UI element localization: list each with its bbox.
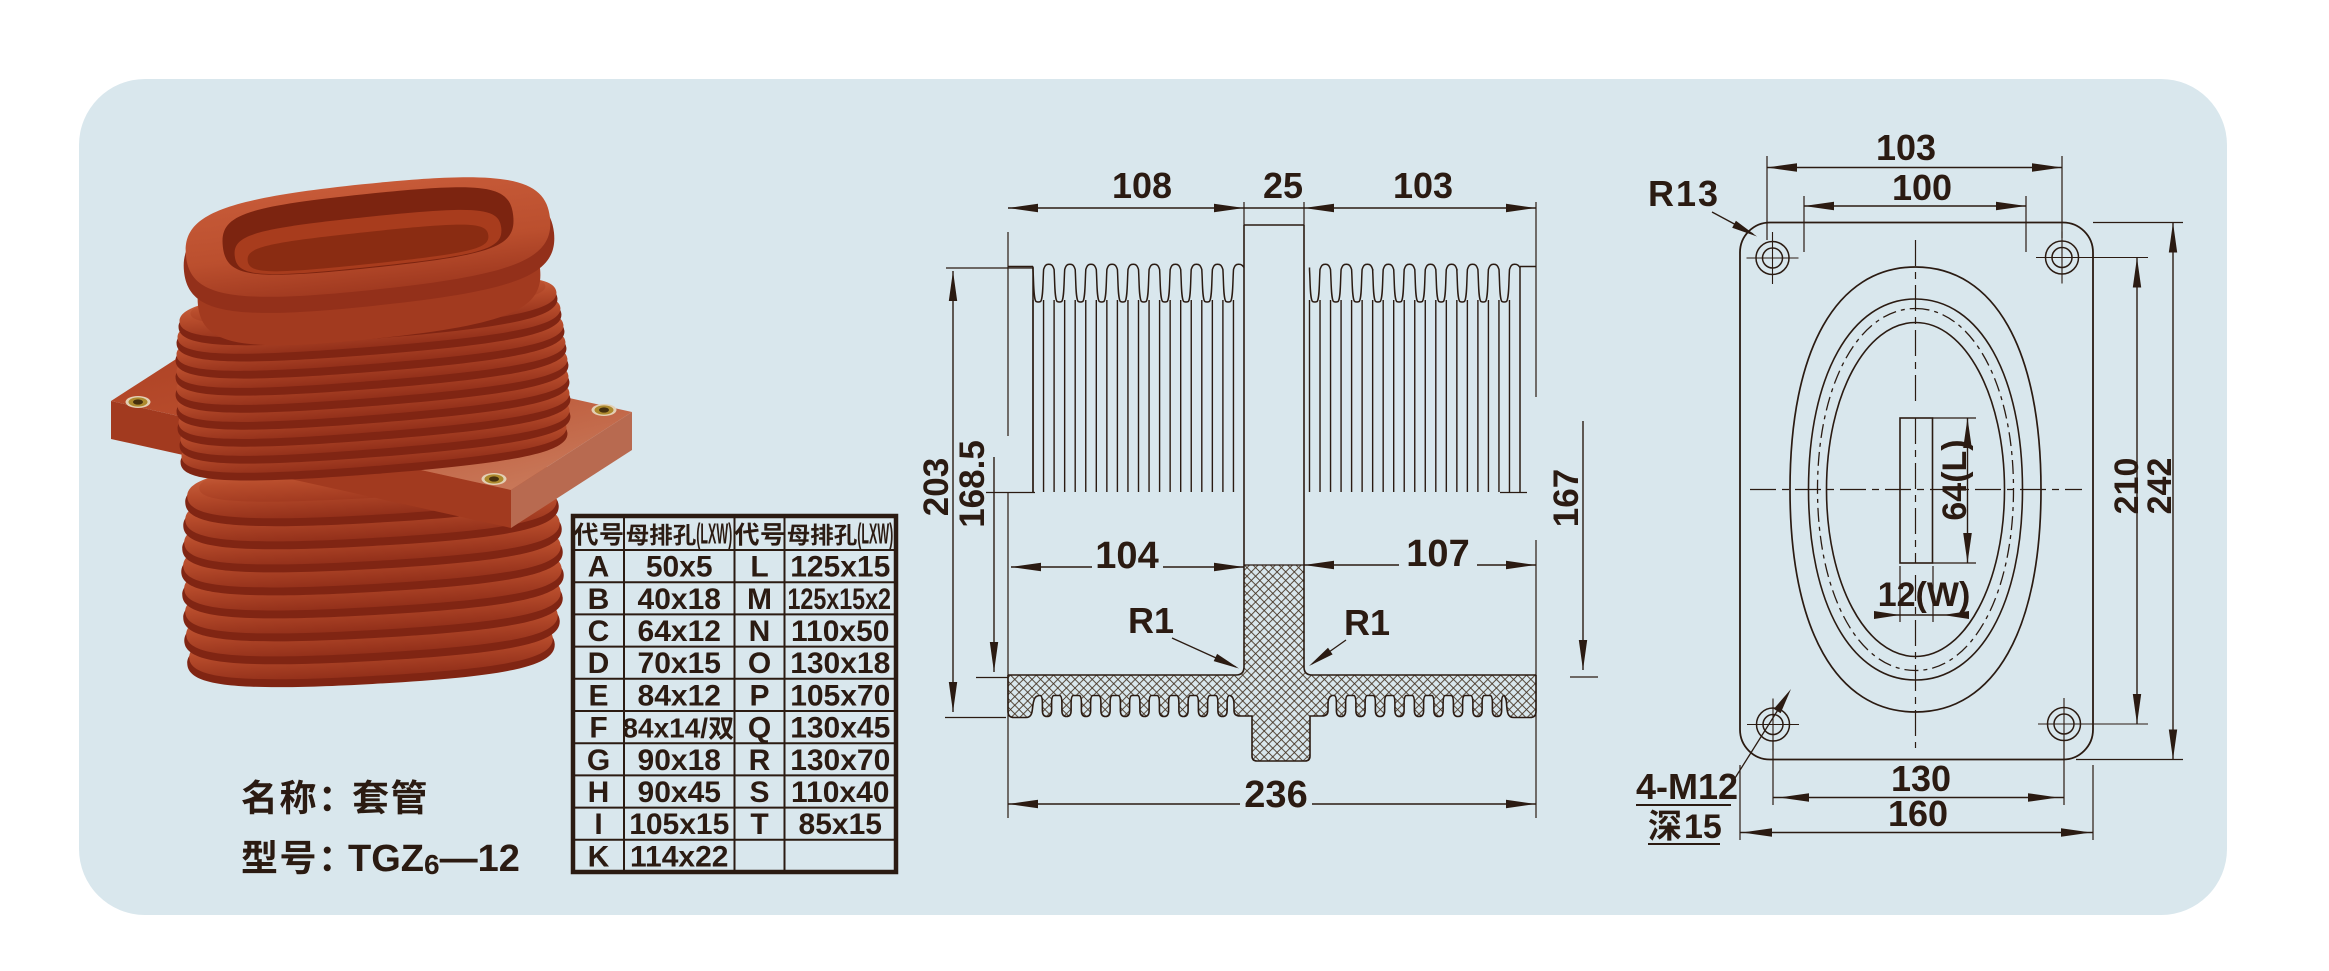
- svg-text:84x14/: 84x14/: [622, 713, 708, 744]
- svg-text:R: R: [749, 744, 771, 777]
- svg-text:15: 15: [1684, 808, 1722, 846]
- svg-text:C: C: [588, 615, 610, 648]
- svg-text:N: N: [749, 615, 771, 648]
- svg-text:R1: R1: [1344, 602, 1390, 643]
- svg-text:H: H: [588, 776, 610, 809]
- svg-text:84x12: 84x12: [638, 679, 721, 712]
- svg-text:E: E: [588, 679, 608, 712]
- svg-text:130x70: 130x70: [790, 744, 890, 777]
- svg-text:(LXW): (LXW): [696, 519, 732, 551]
- svg-text:110x50: 110x50: [791, 615, 889, 648]
- svg-text:I: I: [594, 808, 602, 841]
- svg-text:103: 103: [1876, 127, 1936, 168]
- svg-text:105x15: 105x15: [629, 808, 729, 841]
- svg-text:108: 108: [1112, 165, 1172, 206]
- svg-text:F: F: [589, 712, 607, 745]
- svg-text:M: M: [747, 583, 772, 616]
- svg-text:64x12: 64x12: [638, 615, 721, 648]
- svg-text:103: 103: [1393, 165, 1453, 206]
- svg-text:90x18: 90x18: [638, 744, 721, 777]
- svg-text:L: L: [750, 551, 768, 584]
- svg-text:105x70: 105x70: [790, 679, 890, 712]
- svg-text:40x18: 40x18: [638, 583, 721, 616]
- svg-text:242: 242: [2141, 458, 2179, 515]
- svg-text:A: A: [588, 551, 610, 584]
- svg-text:125x15: 125x15: [790, 551, 890, 584]
- svg-text:G: G: [587, 744, 610, 777]
- svg-text:90x45: 90x45: [638, 776, 721, 809]
- svg-text:K: K: [588, 840, 610, 873]
- svg-text:100: 100: [1892, 167, 1952, 208]
- svg-text:167: 167: [1547, 469, 1586, 527]
- svg-text:4-M12: 4-M12: [1636, 766, 1738, 807]
- svg-text:64(L): 64(L): [1936, 439, 1974, 520]
- svg-text:107: 107: [1406, 533, 1469, 575]
- svg-text:R13: R13: [1648, 173, 1720, 214]
- svg-text:125x15x2: 125x15x2: [788, 583, 892, 616]
- svg-text:B: B: [588, 583, 610, 616]
- svg-text:210: 210: [2108, 458, 2146, 515]
- svg-text:130x45: 130x45: [790, 712, 890, 745]
- svg-text:S: S: [749, 776, 769, 809]
- svg-text:P: P: [749, 679, 769, 712]
- svg-text:168.5: 168.5: [953, 440, 992, 528]
- svg-text:130x18: 130x18: [790, 647, 890, 680]
- svg-text:D: D: [588, 647, 610, 680]
- svg-text:12(W): 12(W): [1878, 576, 1971, 614]
- svg-text:Q: Q: [748, 712, 771, 745]
- svg-text:114x22: 114x22: [630, 840, 728, 873]
- svg-text:203: 203: [917, 458, 956, 516]
- svg-text:25: 25: [1263, 165, 1303, 206]
- svg-text:50x5: 50x5: [646, 551, 713, 584]
- svg-text:160: 160: [1888, 793, 1948, 834]
- svg-text:(LXW): (LXW): [857, 519, 893, 551]
- svg-text:O: O: [748, 647, 771, 680]
- svg-text:85x15: 85x15: [799, 808, 882, 841]
- svg-text:110x40: 110x40: [791, 776, 889, 809]
- svg-text:236: 236: [1244, 774, 1307, 816]
- svg-text:R1: R1: [1128, 600, 1174, 641]
- svg-text:T: T: [750, 808, 768, 841]
- svg-text:104: 104: [1095, 535, 1158, 577]
- svg-text:70x15: 70x15: [638, 647, 721, 680]
